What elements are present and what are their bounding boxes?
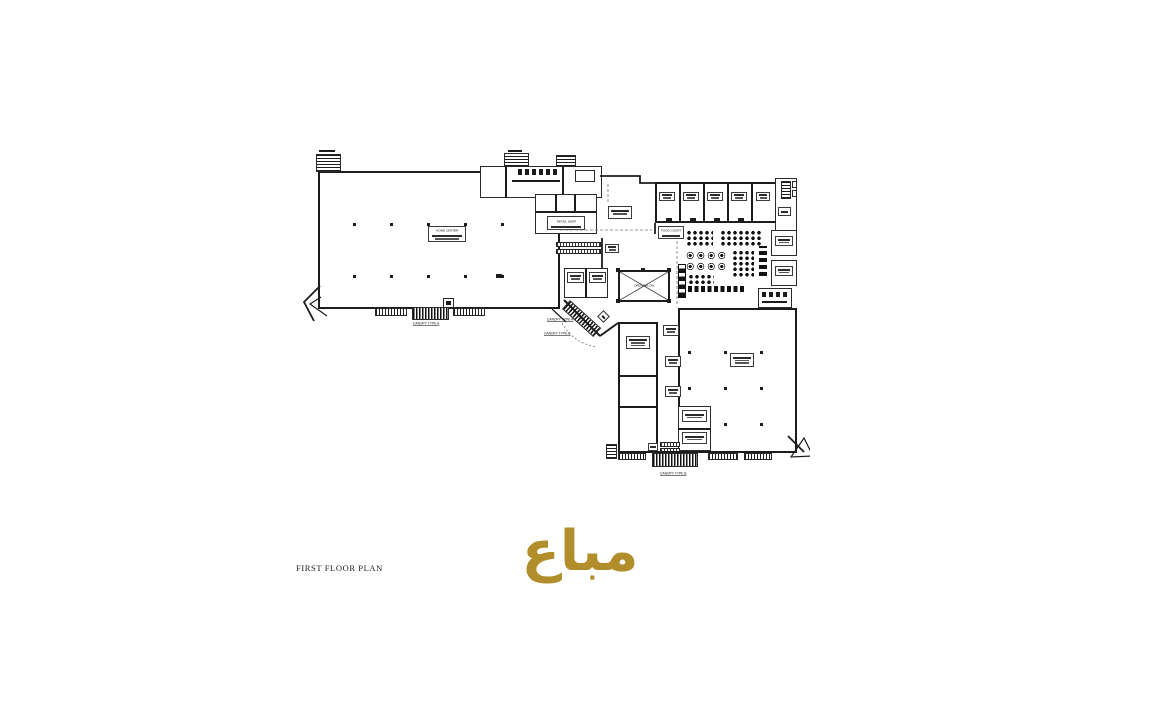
seating-grid [688,274,714,284]
canopy-strip [708,453,738,460]
kiosk-row-outline [655,182,777,223]
kiosk-tag [756,192,770,201]
stair-top-middle [504,153,529,167]
floor-plan: HOME CENTER CANOPY TYPE A RETAIL S [300,150,810,485]
kiosk-tag [659,192,675,201]
room-tag [648,443,658,451]
canopy-entrance-a [412,307,449,320]
room-tag [682,410,707,422]
tag-smudge [432,235,461,237]
stair-bottom-left [606,444,617,459]
seating-booths [759,246,767,276]
room-tag [605,244,619,253]
canopy-type-a-label: CANOPY TYPE A [413,322,439,325]
room-tag [682,432,707,444]
room-tag-retail-shop: RETAIL SHOP [547,216,585,230]
room-tag [589,272,606,283]
servery-counter [678,264,686,298]
lift [792,181,797,188]
open-below-label: OPEN BELOW [634,285,654,288]
sold-stamp-arabic: مباع [515,512,645,592]
column-dot [353,275,356,278]
canopy-strip [375,308,407,316]
seating-grid [720,230,762,246]
canopy-strip [453,308,485,316]
column-dot [390,223,393,226]
room-tag [778,207,791,216]
canopy-type-b-label-bottom: CANOPY TYPE B [660,472,686,475]
kiosk-tag [707,192,723,201]
seating-counter [688,286,746,292]
column-dot [390,275,393,278]
room-tag [665,356,681,367]
core-stair [781,181,791,199]
tag-smudge [662,235,681,237]
canopy-strip [618,453,646,460]
column-dot [427,275,430,278]
escalator-lower-wing [660,442,680,447]
kiosk-tag [731,192,747,201]
escalator-lower [556,249,601,254]
entry-diamond-tag [597,310,610,323]
room-tag [567,272,584,283]
tag-smudge [551,226,580,228]
room-tag-hall [608,206,632,219]
stair-top-middle-2 [556,155,576,167]
canopy-entrance-b [652,453,698,467]
room-tag-home-center: HOME CENTER [428,226,466,242]
drawing-caption: FIRST FLOOR PLAN [296,563,383,573]
column-dot [501,223,504,226]
room-tag [775,266,793,276]
room-tag [775,236,793,246]
small-room [575,170,595,182]
column-dot [353,223,356,226]
room-tag-retail [626,336,650,349]
stair-label-smudge [319,150,335,152]
escalator-upper [556,242,601,247]
home-center-label: HOME CENTER [436,230,458,233]
toilet-block-right [758,288,792,308]
room-tag [663,325,679,336]
tag-smudge [435,238,459,240]
retail-shop-label: RETAIL SHOP [556,220,576,223]
canopy-type-a-label-diag: CANOPY TYPE A [547,318,573,321]
stair-top-left [316,154,341,172]
entry-detail-box [443,298,454,308]
escalator-lower-wing [660,448,680,453]
sheet: HOME CENTER CANOPY TYPE A RETAIL S [0,0,1176,725]
food-court-label: FOOD COURT [661,230,681,233]
room-tag [665,386,681,397]
seating-grid [686,230,713,246]
room-tag-food-court: FOOD COURT [658,226,684,239]
seating-round-tables [685,250,727,272]
lift [792,190,797,197]
room-tag-lower-big-room [730,353,754,367]
plan-mark [496,274,502,278]
seating-grid [732,250,754,277]
canopy-type-b-label-diag: CANOPY TYPE B [544,332,570,335]
canopy-strip [744,453,772,460]
column-dot [464,275,467,278]
kiosk-tag [683,192,699,201]
